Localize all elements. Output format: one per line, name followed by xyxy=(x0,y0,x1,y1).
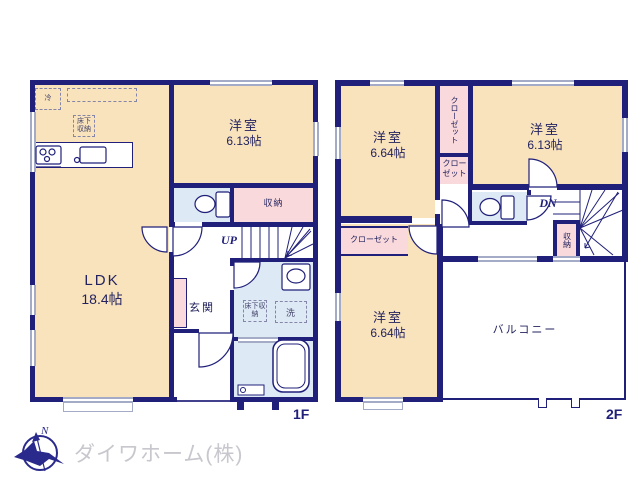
ground-line xyxy=(147,400,231,402)
western-room-2f-c-name: 洋室 xyxy=(344,310,432,326)
wall xyxy=(169,80,174,227)
western-room-2f-b-label: 洋室 6.13帖 xyxy=(485,122,605,153)
wall xyxy=(537,256,553,262)
bath-sliding-door xyxy=(238,337,278,343)
western-room-2f-b-size: 6.13帖 xyxy=(485,138,605,153)
wall xyxy=(557,184,628,190)
floor2-tag: 2F xyxy=(606,406,622,422)
fridge-label: 冷 xyxy=(45,95,52,103)
balcony-sliding-door xyxy=(478,256,537,262)
wall xyxy=(527,190,531,195)
western-room-2f-c-size: 6.64帖 xyxy=(344,326,432,341)
balcony-post xyxy=(538,398,547,408)
stairs-up-label: UP xyxy=(214,233,244,248)
window xyxy=(512,80,574,86)
wall xyxy=(622,80,628,262)
ldk-name: LDK xyxy=(50,272,154,291)
ldk-size: 18.4帖 xyxy=(50,291,154,309)
kitchen-counter xyxy=(33,142,133,168)
wall xyxy=(580,256,628,262)
closet-small-label: クローゼット xyxy=(441,159,468,179)
entry-door-arc xyxy=(199,333,233,367)
window xyxy=(335,293,341,321)
western-room-1f-name: 洋室 xyxy=(184,118,304,134)
window xyxy=(30,330,36,366)
closet-wide-label: クローゼット xyxy=(340,235,408,245)
window xyxy=(313,122,319,156)
western-room-2f-a-label: 洋室 6.64帖 xyxy=(344,130,432,161)
floorplan-1f: 冷 床下収納 床下収納 洗 xyxy=(30,80,318,402)
window xyxy=(622,118,628,152)
floorplan-canvas: 冷 床下収納 床下収納 洗 xyxy=(0,0,640,480)
wall xyxy=(468,86,473,184)
bird-silhouette xyxy=(14,441,64,466)
north-needle xyxy=(32,432,40,442)
fridge-space: 冷 xyxy=(35,88,61,110)
closet-tall-label: クローゼット xyxy=(440,88,468,152)
underfloor-storage-label: 床下収納 xyxy=(74,118,94,134)
window-sliding xyxy=(63,397,133,403)
room-bathroom xyxy=(234,341,313,397)
wall xyxy=(468,221,527,225)
floor1-tag: 1F xyxy=(293,406,309,422)
underfloor-storage-label: 床下収納 xyxy=(244,303,266,319)
counter-space xyxy=(67,88,137,102)
wall xyxy=(437,224,443,402)
wall xyxy=(335,216,412,223)
company-logo-text: ダイワホーム(株) xyxy=(74,438,243,468)
entrance-label: 玄関 xyxy=(174,302,230,316)
window-sliding xyxy=(363,397,403,403)
wall xyxy=(230,262,234,266)
storage-1f-label: 収納 xyxy=(234,198,313,209)
wall xyxy=(440,256,478,262)
window xyxy=(30,112,36,172)
room-toilet-1f xyxy=(174,188,230,222)
western-room-2f-c-label: 洋室 6.64帖 xyxy=(344,310,432,341)
balcony-sliding-door xyxy=(553,256,580,262)
window xyxy=(370,80,404,86)
wall xyxy=(30,80,318,85)
wall xyxy=(169,183,318,188)
western-room-1f-label: 洋室 6.13帖 xyxy=(184,118,304,149)
balcony-post xyxy=(571,398,580,408)
western-room-1f-size: 6.13帖 xyxy=(184,134,304,149)
western-room-2f-a-size: 6.64帖 xyxy=(344,146,432,161)
wall xyxy=(576,220,580,258)
wall-stub xyxy=(272,402,279,410)
laundry-space: 洗 xyxy=(275,301,307,323)
laundry-label: 洗 xyxy=(286,306,296,319)
toilet-door-arc xyxy=(173,227,202,256)
compass-icon: N xyxy=(12,424,68,480)
floorplan-2f: 洋室 6.64帖 クローゼット クローゼット 洋室 6.13帖 DN 収納 クロ… xyxy=(335,80,628,402)
window xyxy=(335,127,341,159)
wall xyxy=(202,222,318,227)
wall xyxy=(169,329,199,333)
western-room-2f-a-name: 洋室 xyxy=(344,130,432,146)
balcony-label: バルコニー xyxy=(475,324,575,338)
stairs-up xyxy=(242,227,313,258)
balcony-rail xyxy=(624,262,626,400)
room-toilet-2f xyxy=(472,192,527,221)
balcony-rail xyxy=(443,398,626,400)
window xyxy=(30,285,36,315)
porch-step xyxy=(63,402,133,412)
western-room-2f-b-name: 洋室 xyxy=(485,122,605,138)
wall xyxy=(468,190,472,225)
window xyxy=(210,80,272,86)
underfloor-storage-ldk: 床下収納 xyxy=(73,115,95,137)
porch-step xyxy=(363,402,403,410)
wall xyxy=(468,184,529,190)
storage-2f-label: 収納 xyxy=(557,225,576,255)
wall xyxy=(230,258,318,262)
wall xyxy=(169,222,175,227)
wall-stub xyxy=(237,402,244,410)
compass-north-letter: N xyxy=(40,425,49,437)
wall xyxy=(230,290,234,402)
ldk-label: LDK 18.4帖 xyxy=(50,272,154,308)
stairs-down-label: DN xyxy=(533,196,563,211)
underfloor-storage-washroom: 床下収納 xyxy=(243,300,267,322)
room-ldk xyxy=(35,85,169,397)
western-a-door-arc xyxy=(442,200,469,227)
